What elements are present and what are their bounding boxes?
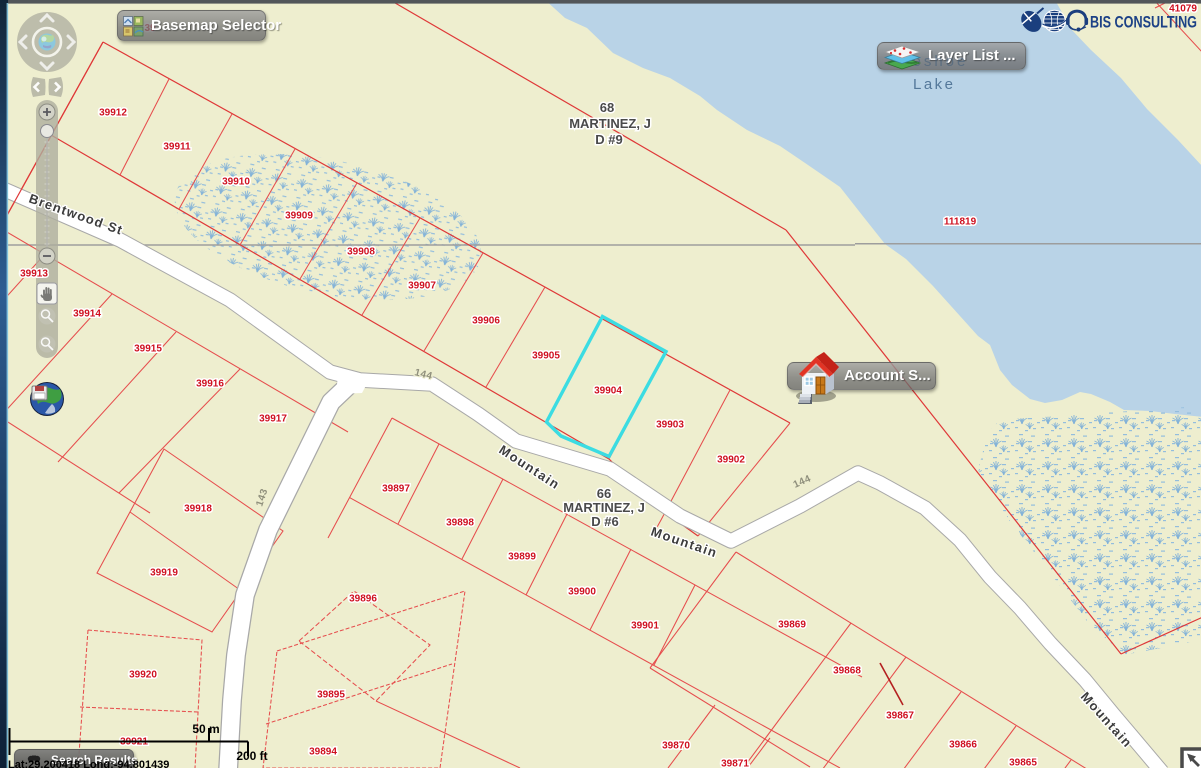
svg-text:39911: 39911	[163, 142, 191, 153]
svg-text:39920: 39920	[129, 670, 157, 681]
svg-text:39914: 39914	[73, 309, 101, 320]
svg-text:39915: 39915	[134, 344, 162, 355]
svg-text:39894: 39894	[309, 747, 337, 758]
svg-text:39900: 39900	[568, 587, 596, 598]
svg-text:111819: 111819	[944, 217, 977, 228]
svg-text:39896: 39896	[349, 594, 377, 605]
svg-text:68: 68	[600, 100, 614, 115]
svg-text:39868: 39868	[833, 666, 861, 677]
svg-text:39898: 39898	[446, 518, 474, 529]
svg-text:39916: 39916	[196, 379, 224, 390]
svg-text:39909: 39909	[285, 211, 313, 222]
svg-text:39919: 39919	[150, 568, 178, 579]
svg-text:D #6: D #6	[591, 514, 618, 529]
svg-text:39917: 39917	[259, 414, 287, 425]
svg-text:MARTINEZ, J: MARTINEZ, J	[563, 500, 645, 515]
svg-text:39867: 39867	[886, 711, 914, 722]
svg-text:39913: 39913	[20, 269, 48, 280]
svg-text:39901: 39901	[631, 621, 659, 632]
svg-text:39895: 39895	[317, 690, 345, 701]
svg-text:39899: 39899	[508, 552, 536, 563]
svg-text:39904: 39904	[594, 386, 622, 397]
svg-text:39908: 39908	[347, 247, 375, 258]
svg-text:39870: 39870	[662, 741, 690, 752]
svg-text:39871: 39871	[721, 759, 749, 768]
svg-text:39910: 39910	[222, 177, 250, 188]
svg-text:39905: 39905	[532, 351, 560, 362]
svg-text:39897: 39897	[382, 484, 410, 495]
svg-text:50 m: 50 m	[192, 722, 219, 736]
svg-text:39903: 39903	[656, 420, 684, 431]
svg-text:D #9: D #9	[595, 132, 622, 147]
svg-text:39907: 39907	[408, 281, 436, 292]
svg-text:MARTINEZ, J: MARTINEZ, J	[569, 116, 651, 131]
svg-text:39866: 39866	[949, 740, 977, 751]
svg-text:39865: 39865	[1009, 758, 1037, 768]
svg-text:66: 66	[597, 486, 611, 501]
svg-text:39918: 39918	[184, 504, 212, 515]
svg-text:200 ft: 200 ft	[236, 749, 267, 763]
svg-text:39902: 39902	[717, 455, 745, 466]
svg-text:39869: 39869	[778, 620, 806, 631]
svg-text:39906: 39906	[472, 316, 500, 327]
svg-text:39912: 39912	[99, 108, 127, 119]
svg-text:BIS CONSULTING: BIS CONSULTING	[1090, 14, 1197, 32]
